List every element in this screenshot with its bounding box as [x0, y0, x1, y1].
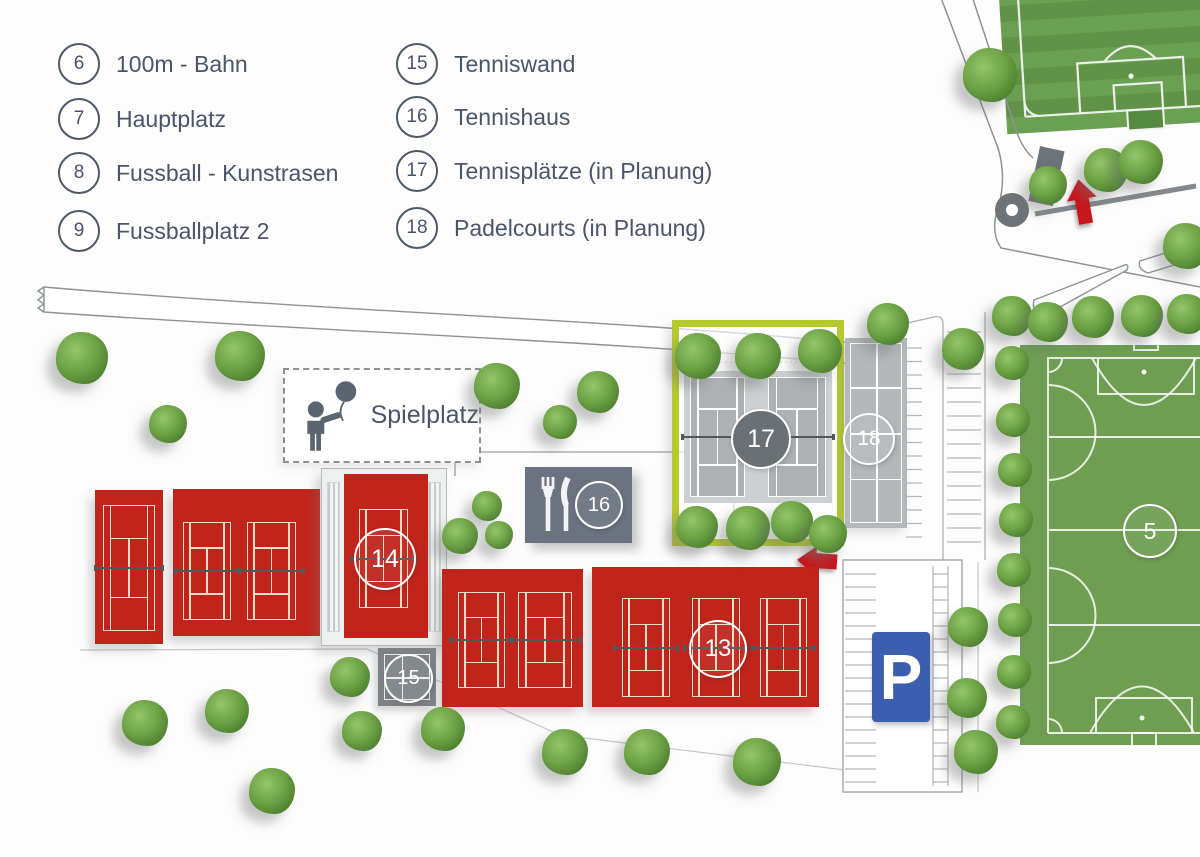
legend-number-9: 9: [58, 210, 100, 252]
legend-label-9: Fussballplatz 2: [116, 218, 269, 245]
tree-icon: [122, 700, 168, 746]
tree-icon: [442, 518, 478, 554]
tree-icon: [1167, 294, 1200, 334]
tree-icon: [996, 705, 1030, 739]
tree-icon: [954, 730, 998, 774]
tree-icon: [998, 603, 1032, 637]
legend-label-18: Padelcourts (in Planung): [454, 215, 706, 242]
tennis-court: [760, 598, 807, 697]
tree-icon: [942, 328, 984, 370]
tree-icon: [999, 503, 1033, 537]
tree-icon: [624, 729, 670, 775]
tennis-court: [458, 592, 505, 688]
playground-box: Spielplatz: [283, 368, 481, 463]
legend-label-15: Tenniswand: [454, 51, 575, 78]
badge-wall-15: 15: [384, 654, 433, 703]
legend-label-17: Tennisplätze (in Planung): [454, 158, 712, 185]
legend-item-18: 18 Padelcourts (in Planung): [396, 208, 706, 248]
tree-icon: [342, 711, 382, 751]
tree-icon: [1028, 302, 1068, 342]
tree-icon: [947, 678, 987, 718]
legend-item-9: 9 Fussballplatz 2: [58, 211, 269, 251]
playground-label: Spielplatz: [371, 401, 479, 430]
clay-court-block-d: [442, 569, 583, 707]
tennis-court: [622, 598, 670, 697]
tree-icon: [56, 332, 108, 384]
tennis-court: [518, 592, 572, 688]
tree-icon: [997, 655, 1031, 689]
stand-left: [327, 482, 340, 632]
tree-icon: [997, 553, 1031, 587]
legend-number-7: 7: [58, 98, 100, 140]
legend-item-16: 16 Tennishaus: [396, 97, 570, 137]
tree-icon: [992, 296, 1032, 336]
tree-icon: [1163, 223, 1200, 269]
tree-icon: [472, 491, 502, 521]
clay-court-block-b: [173, 489, 320, 636]
parking-sign: P: [872, 632, 930, 722]
tree-icon: [735, 333, 781, 379]
tree-icon: [733, 738, 781, 786]
tree-icon: [998, 453, 1032, 487]
tree-icon: [1119, 140, 1163, 184]
roundabout: [995, 193, 1029, 227]
tree-icon: [1072, 296, 1114, 338]
tennis-court: [103, 505, 155, 631]
tree-icon: [542, 729, 588, 775]
tree-icon: [249, 768, 295, 814]
tree-icon: [421, 707, 465, 751]
tree-icon: [149, 405, 187, 443]
tree-icon: [1121, 295, 1163, 337]
legend-label-7: Hauptplatz: [116, 106, 226, 133]
tree-icon: [330, 657, 370, 697]
stand-right: [428, 482, 441, 632]
tree-icon: [474, 363, 520, 409]
legend-item-7: 7 Hauptplatz: [58, 99, 226, 139]
tree-icon: [1029, 166, 1067, 204]
badge-court-14: 14: [354, 528, 416, 590]
badge-court-13: 13: [689, 620, 747, 678]
legend-label-16: Tennishaus: [454, 104, 570, 131]
tree-icon: [995, 346, 1029, 380]
site-plan-map: 6 100m - Bahn 7 Hauptplatz 8 Fussball - …: [0, 0, 1200, 857]
tree-icon: [867, 303, 909, 345]
parking-sign-letter: P: [880, 640, 923, 714]
badge-courts-17: 17: [731, 409, 791, 469]
badge-house-16: 16: [575, 481, 623, 529]
legend-item-8: 8 Fussball - Kunstrasen: [58, 153, 338, 193]
tree-icon: [771, 501, 813, 543]
tree-icon: [577, 371, 619, 413]
tree-icon: [963, 48, 1017, 102]
legend-label-8: Fussball - Kunstrasen: [116, 160, 338, 187]
tree-icon: [675, 333, 721, 379]
legend-item-6: 6 100m - Bahn: [58, 44, 248, 84]
tree-icon: [215, 331, 265, 381]
football-field-top: [995, 0, 1200, 138]
tree-icon: [809, 515, 847, 553]
tree-icon: [948, 607, 988, 647]
tennis-court: [247, 522, 296, 620]
tree-icon: [798, 329, 842, 373]
legend-number-6: 6: [58, 43, 100, 85]
tree-icon: [996, 403, 1030, 437]
child-balloon-icon: [297, 375, 367, 457]
legend-number-17: 17: [396, 150, 438, 192]
legend-number-8: 8: [58, 152, 100, 194]
tree-icon: [485, 521, 513, 549]
tree-icon: [726, 506, 770, 550]
legend-number-15: 15: [396, 43, 438, 85]
legend-label-6: 100m - Bahn: [116, 51, 248, 78]
clay-court-block-a: [95, 490, 163, 644]
badge-field-5: 5: [1123, 504, 1177, 558]
legend-item-15: 15 Tenniswand: [396, 44, 575, 84]
tree-icon: [676, 506, 718, 548]
legend-number-18: 18: [396, 207, 438, 249]
badge-padel-18: 18: [843, 413, 895, 465]
legend-item-17: 17 Tennisplätze (in Planung): [396, 151, 712, 191]
legend-number-16: 16: [396, 96, 438, 138]
tree-icon: [543, 405, 577, 439]
tennis-court: [183, 522, 231, 620]
tree-icon: [205, 689, 249, 733]
